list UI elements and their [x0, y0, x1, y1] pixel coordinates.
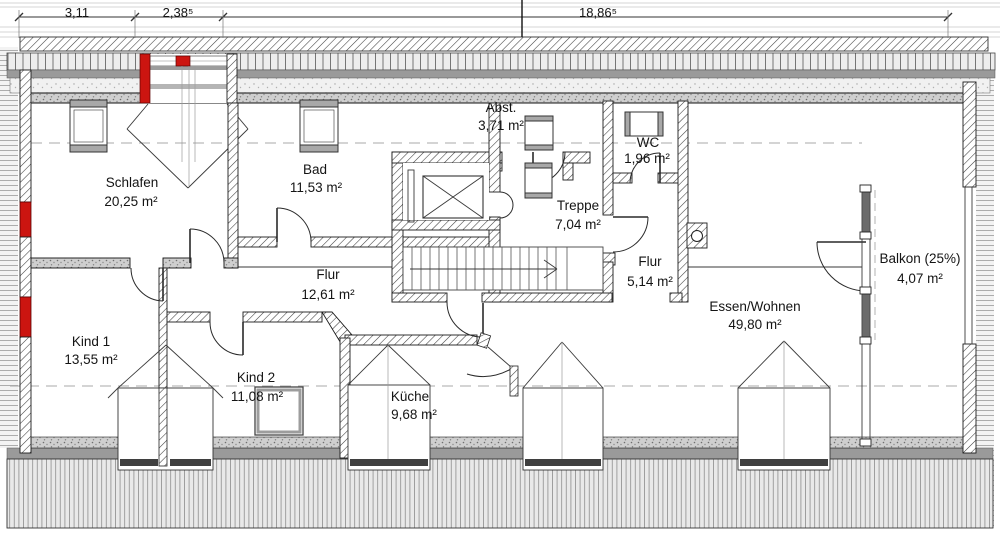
room-name-abst: Abst. — [486, 100, 517, 115]
room-name-schlafen: Schlafen — [106, 175, 159, 190]
abst-roof-window-2 — [525, 163, 552, 198]
room-area-abst: 3,71 m² — [478, 118, 524, 133]
abst-roof-window-1 — [525, 116, 553, 150]
room-name-flur2: Flur — [638, 254, 662, 269]
dimension-label-highlight: 2,38⁵ — [163, 5, 194, 20]
room-area-wc: 1,96 m² — [624, 151, 670, 166]
staircase — [403, 247, 603, 290]
room-area-balkon: 4,07 m² — [897, 271, 943, 286]
schlafen-roof-window — [70, 100, 107, 152]
room-name-flur: Flur — [316, 267, 340, 282]
bad-roof-window — [300, 100, 338, 152]
dimension-label: 18,86⁵ — [579, 5, 617, 20]
room-name-treppe: Treppe — [557, 198, 599, 213]
room-name-kind2: Kind 2 — [237, 370, 275, 385]
room-area-bad: 11,53 m² — [290, 180, 343, 195]
dormer-red-wall — [140, 54, 150, 103]
firewall-segment — [20, 297, 31, 337]
room-area-schlafen: 20,25 m² — [104, 194, 158, 209]
room-area-wohnen: 49,80 m² — [728, 317, 782, 332]
room-area-kueche: 9,68 m² — [391, 407, 437, 422]
room-name-wc: WC — [637, 135, 660, 150]
wc-window — [625, 112, 663, 136]
firewall-segment — [20, 202, 31, 237]
dimension-label: 3,11 — [65, 5, 89, 20]
room-name-bad: Bad — [303, 162, 327, 177]
room-area-flur: 12,61 m² — [301, 287, 355, 302]
room-name-wohnen: Essen/Wohnen — [709, 299, 800, 314]
room-area-flur2: 5,14 m² — [627, 274, 673, 289]
room-name-kueche: Küche — [391, 389, 429, 404]
room-area-kind2: 11,08 m² — [231, 389, 284, 404]
left-roof-overhang — [0, 47, 18, 448]
floor-plan-drawing: 3,11 2,38⁵ 18,86⁵ Schlafen 20,25 m² Bad … — [0, 0, 1000, 548]
room-area-treppe: 7,04 m² — [555, 217, 601, 232]
chimney — [687, 223, 707, 248]
floor-plan-canvas: 3,11 2,38⁵ 18,86⁵ Schlafen 20,25 m² Bad … — [0, 0, 1000, 548]
room-name-kind1: Kind 1 — [72, 334, 110, 349]
room-name-balkon: Balkon (25%) — [879, 251, 960, 266]
room-area-kind1: 13,55 m² — [64, 352, 118, 367]
